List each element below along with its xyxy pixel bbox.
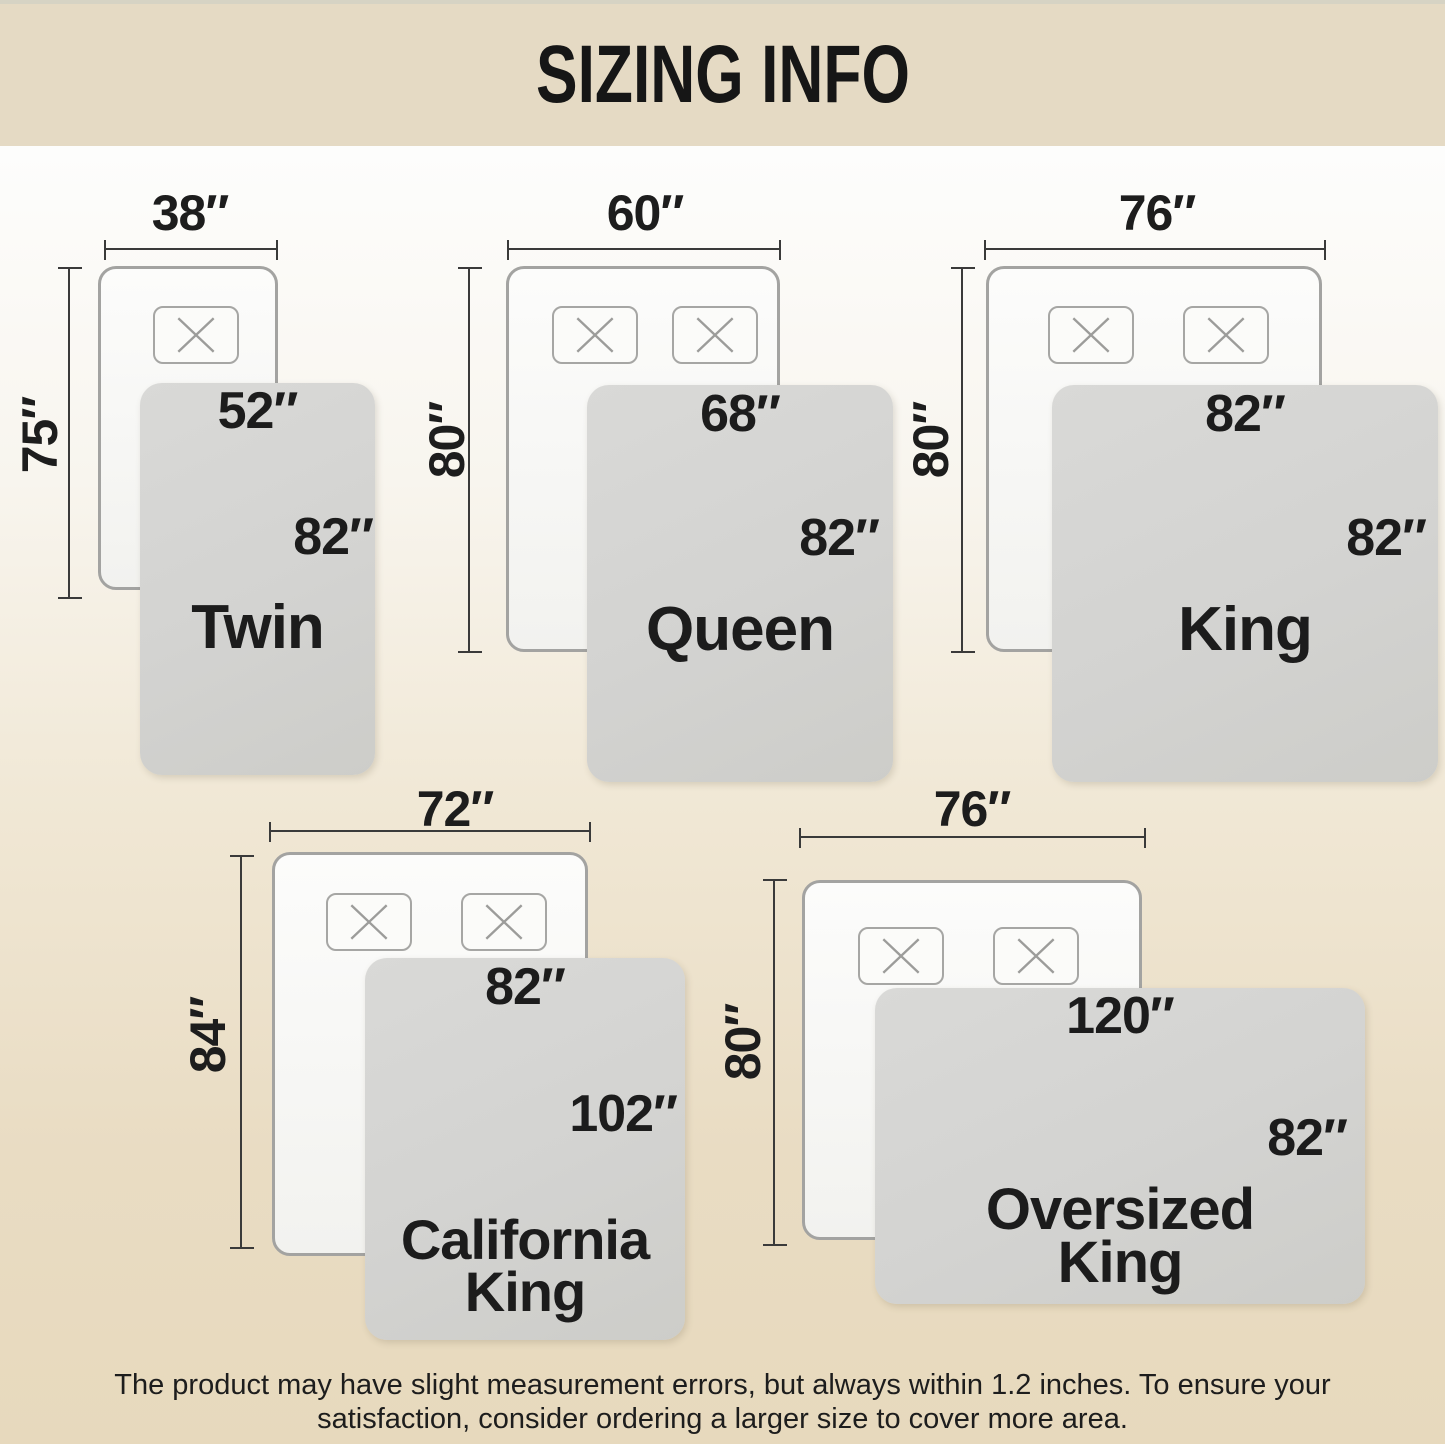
blanket-length-label: 82″ [799, 514, 879, 562]
disclaimer-line2: satisfaction, consider ordering a larger… [0, 1402, 1445, 1436]
sizing-info-page: SIZING INFO 38″ 75″ 52″ 82″ Twin 60″ 80″ [0, 0, 1445, 1444]
bed-width-dimension-line [800, 836, 1145, 838]
size-name-line2: King [365, 1266, 685, 1318]
bed-width-dimension-line [105, 248, 277, 250]
pillow [993, 927, 1079, 985]
pillow-x-icon [328, 895, 410, 949]
bed-width-dimension-line [270, 830, 590, 832]
bed-length-label: 80″ [424, 362, 470, 518]
blanket-overlay: 120″ 82″ Oversized King [875, 988, 1365, 1304]
blanket-width-label: 68″ [587, 390, 893, 438]
pillow [1048, 306, 1134, 364]
blanket-width-label: 82″ [365, 963, 685, 1011]
bed-length-label: 80″ [908, 362, 954, 518]
bed-length-dimension-line [468, 268, 470, 652]
blanket-overlay: 82″ 82″ King [1052, 385, 1438, 782]
pillow [1183, 306, 1269, 364]
bed-width-label: 76″ [1077, 190, 1237, 236]
size-name-line2: King [875, 1236, 1365, 1289]
pillow [552, 306, 638, 364]
blanket-width-label: 82″ [1052, 390, 1438, 438]
blanket-length-label: 102″ [569, 1090, 677, 1138]
size-name-label: Queen [587, 602, 893, 658]
blanket-overlay: 68″ 82″ Queen [587, 385, 893, 782]
pillow [858, 927, 944, 985]
page-title: SIZING INFO [536, 28, 910, 122]
pillow-x-icon [1050, 308, 1132, 362]
blanket-overlay: 52″ 82″ Twin [140, 383, 375, 775]
bed-length-dimension-line [68, 268, 70, 598]
pillow [326, 893, 412, 951]
pillow-x-icon [995, 929, 1077, 983]
size-name-label: Oversized King [875, 1183, 1365, 1289]
pillow [461, 893, 547, 951]
size-name-label: Twin [140, 600, 375, 656]
bed-length-dimension-line [961, 268, 963, 652]
size-name-line1: Oversized [875, 1183, 1365, 1236]
bed-length-label: 75″ [17, 357, 63, 513]
bed-width-label: 76″ [892, 786, 1052, 832]
size-name-line1: Queen [587, 602, 893, 658]
blanket-length-label: 82″ [293, 513, 373, 561]
pillow-x-icon [674, 308, 756, 362]
pillow-x-icon [860, 929, 942, 983]
bed-length-dimension-line [773, 880, 775, 1245]
pillow-x-icon [554, 308, 636, 362]
blanket-length-label: 82″ [1267, 1114, 1347, 1162]
size-name-line1: California [365, 1214, 685, 1266]
bed-length-dimension-line [240, 856, 242, 1248]
pillow [672, 306, 758, 364]
bed-width-dimension-line [508, 248, 780, 250]
header-banner: SIZING INFO [0, 0, 1445, 146]
bed-width-label: 60″ [565, 190, 725, 236]
bed-width-label: 72″ [375, 786, 535, 832]
size-name-label: California King [365, 1214, 685, 1318]
pillow [153, 306, 239, 364]
bed-width-dimension-line [985, 248, 1325, 250]
bed-length-label: 80″ [720, 964, 766, 1120]
pillow-x-icon [1185, 308, 1267, 362]
pillow-x-icon [463, 895, 545, 949]
size-name-line1: Twin [140, 600, 375, 656]
measurement-disclaimer: The product may have slight measurement … [0, 1368, 1445, 1436]
bed-width-label: 38″ [110, 190, 270, 236]
bed-length-label: 84″ [185, 957, 231, 1113]
disclaimer-line1: The product may have slight measurement … [0, 1368, 1445, 1402]
blanket-length-label: 82″ [1346, 514, 1426, 562]
blanket-width-label: 52″ [140, 387, 375, 435]
size-name-label: King [1052, 602, 1438, 658]
blanket-overlay: 82″ 102″ California King [365, 958, 685, 1340]
size-name-line1: King [1052, 602, 1438, 658]
blanket-width-label: 120″ [875, 992, 1365, 1040]
pillow-x-icon [155, 308, 237, 362]
